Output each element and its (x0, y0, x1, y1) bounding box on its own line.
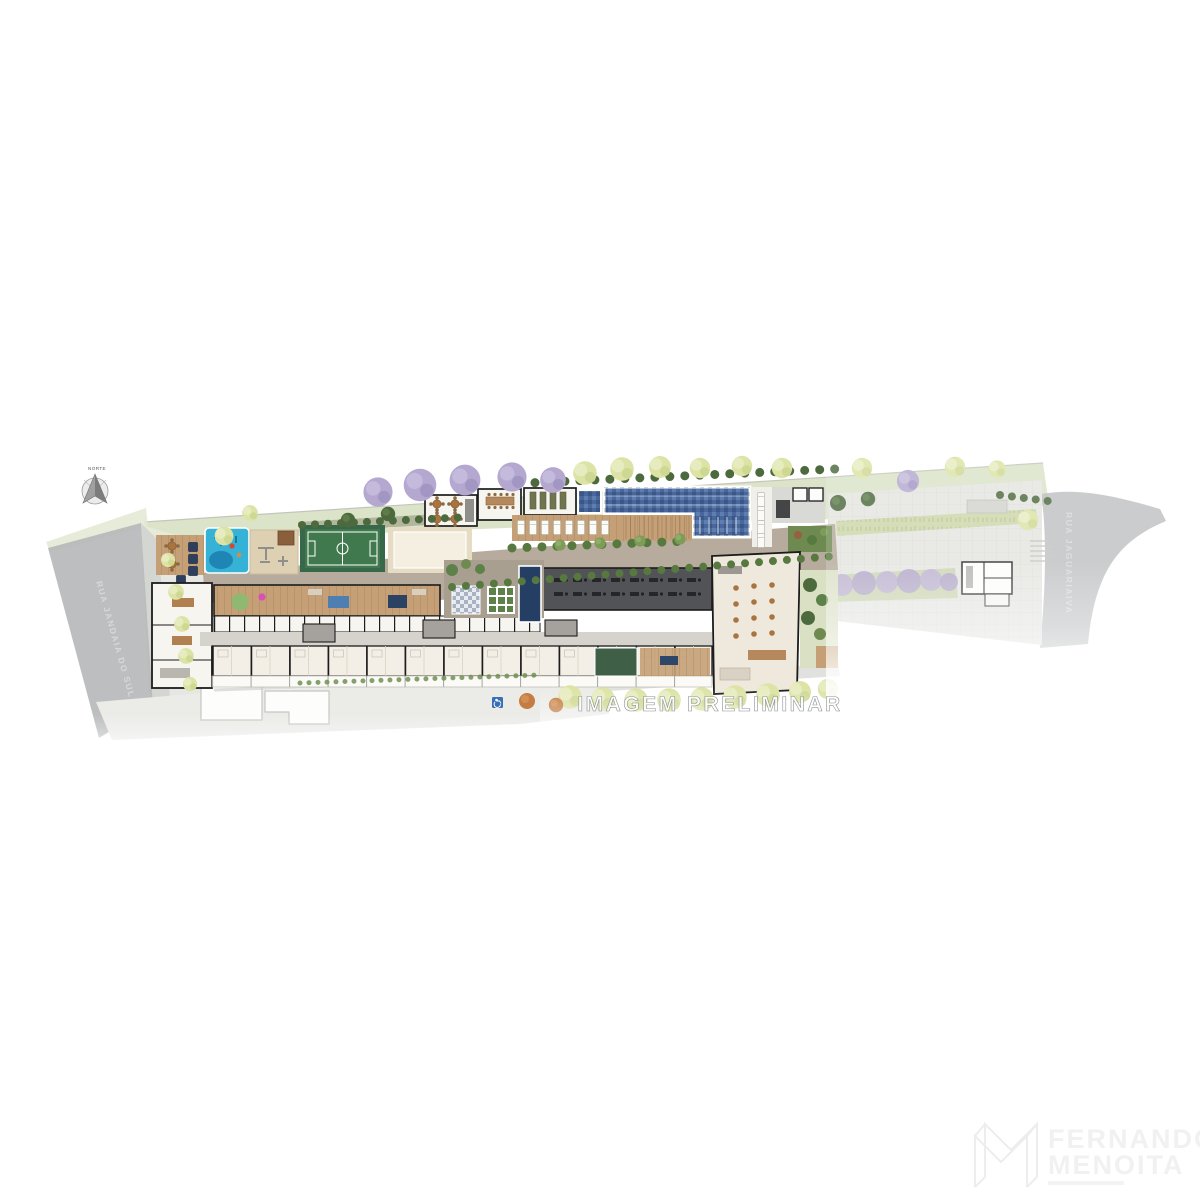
playground-toy-house (278, 531, 294, 545)
wheelchair-icon (492, 697, 503, 708)
lounger-icon (518, 521, 525, 535)
site-plan-svg: RUA JANDAIA DO SUL RUA JAGUARIAIVA (0, 0, 1200, 1200)
service-room (809, 488, 823, 501)
logo-name-line2: MENOITA (1048, 1150, 1185, 1180)
tree-icon (341, 513, 355, 527)
lobby-bench (720, 668, 750, 680)
lounger-icon (758, 534, 765, 548)
lounge-sofa (308, 589, 322, 595)
garden-plant (794, 531, 802, 539)
left-wing-sofa (160, 668, 190, 678)
kids-room-rug (232, 594, 249, 611)
site-plan-page: RUA JANDAIA DO SUL RUA JAGUARIAIVA (0, 0, 1200, 1200)
spa-pool (519, 566, 541, 622)
tree-icon (649, 456, 671, 478)
kids-toy-red (229, 543, 234, 548)
tree-icon (183, 677, 197, 691)
tree-icon (540, 467, 566, 493)
garden-bush (814, 628, 826, 640)
tree-icon (174, 616, 190, 632)
lounger-icon (530, 521, 537, 535)
tree-icon (497, 462, 526, 491)
tree-icon (381, 507, 395, 521)
garden-bush (803, 578, 817, 592)
garden-bush (801, 611, 815, 625)
kids-pool (209, 551, 233, 569)
tree-icon (519, 693, 535, 709)
fade-bottom-right (826, 560, 1200, 710)
poolside-loungers-east (752, 487, 772, 548)
garden-bush (446, 564, 458, 576)
tree-icon (634, 535, 645, 546)
elevator-core (303, 624, 335, 642)
lounger-icon (602, 521, 609, 535)
watermark-text: IMAGEM PRELIMINAR (577, 693, 842, 716)
tree-icon (161, 553, 175, 567)
tree-icon (450, 465, 481, 496)
lounger-icon (554, 521, 561, 535)
central-garden (444, 559, 544, 622)
kids-toy-orange (237, 553, 241, 557)
lounger-icon (758, 521, 765, 535)
tree-icon (690, 458, 710, 478)
tree-icon (610, 457, 634, 481)
lounger-icon (590, 521, 597, 535)
garden-plant (807, 535, 817, 545)
corridor (200, 632, 712, 646)
elevator-core (423, 620, 455, 638)
garden-bush (461, 559, 471, 569)
games-table (660, 656, 678, 665)
logo-monogram (975, 1124, 1037, 1187)
daybed-icon (189, 567, 198, 576)
tree-icon (215, 527, 234, 546)
lounger-icon (758, 493, 765, 507)
service-room (793, 488, 807, 501)
squash-room (595, 648, 637, 676)
pool-deck (512, 515, 692, 541)
lobby-coworking-wing (712, 552, 800, 694)
tree-icon (242, 505, 258, 521)
amenity-lounges (214, 585, 440, 616)
spa-square-pool (578, 490, 601, 513)
tree-icon (573, 461, 597, 485)
tree-icon (772, 458, 792, 478)
lounger-icon (566, 521, 573, 535)
spa-square-pool-tiles (578, 490, 601, 513)
tree-icon (594, 537, 605, 548)
lounge-rug-blue (328, 596, 349, 608)
games-rooms (595, 648, 710, 676)
tree-icon (404, 469, 437, 502)
left-wing-table (172, 636, 192, 645)
chess-patio (452, 586, 480, 614)
lounger-icon (578, 521, 585, 535)
service-dark-room (776, 500, 790, 518)
lounger-icon (542, 521, 549, 535)
kids-room-ball (258, 593, 265, 600)
tree-icon (732, 456, 752, 476)
architect-logo: FERNANDO MENOITA (975, 1124, 1200, 1187)
lounge-sofa (412, 589, 426, 595)
fade-bottom-garage (60, 714, 560, 758)
logo-tagline-bar (1048, 1181, 1124, 1185)
tree-icon (674, 533, 685, 544)
garden-planters (487, 586, 515, 614)
sports-court (300, 525, 385, 572)
lobby-long-table (748, 650, 786, 660)
fitness-center (543, 568, 712, 610)
tree-icon (168, 584, 184, 600)
grill-counter (465, 499, 474, 522)
daybed-icon (189, 543, 198, 552)
service-rooms-walls (214, 616, 540, 632)
lounger-icon (758, 507, 765, 521)
daybed-icon (189, 555, 198, 564)
playground (250, 530, 298, 574)
elevator-core (545, 620, 577, 636)
lounge-rug-navy (388, 595, 407, 608)
tree-icon (363, 477, 392, 506)
compass: NORTE (82, 466, 108, 504)
tree-icon (178, 648, 194, 664)
garden-bush (475, 564, 485, 574)
compass-label: NORTE (88, 466, 106, 471)
tree-icon (554, 539, 565, 550)
accessibility-marker (492, 697, 503, 708)
gym-equipment (549, 572, 706, 606)
dining-long-table (486, 497, 514, 505)
